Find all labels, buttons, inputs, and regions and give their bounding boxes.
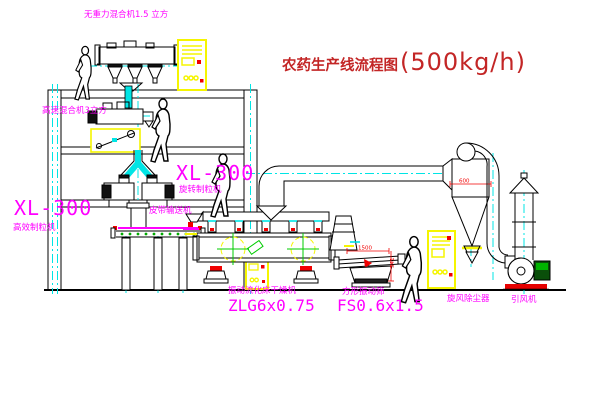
- conveyor-supports: [122, 238, 187, 290]
- belt-drive-box: [91, 129, 140, 152]
- label-dryer-name: 振动流化床干燥机: [228, 287, 296, 296]
- label-fan: 引风机: [511, 296, 537, 305]
- title-capacity: (500kg/h): [400, 48, 526, 76]
- control-cabinet-top: [178, 40, 206, 90]
- label-cyclone: 旋风除尘器: [447, 295, 490, 304]
- label-granulator-left-name: 高效制粒机: [13, 224, 56, 233]
- dimension-541: 541: [390, 258, 396, 269]
- label-gravity-mixer: 无重力混合机1.5 立方: [84, 11, 168, 20]
- label-dryer-model: ZLG6x0.75: [228, 298, 315, 314]
- label-screen-model: FS0.6x1.5: [337, 298, 424, 314]
- label-belt-conveyor: 皮带输送机: [149, 207, 192, 216]
- page-title: 农药生产线流程图 (500kg/h): [282, 48, 526, 76]
- dimension-1500: 1500: [358, 246, 372, 252]
- title-text: 农药生产线流程图: [282, 54, 398, 75]
- stack-cap: [510, 173, 538, 193]
- label-granulator-left-model: XL-300: [14, 198, 92, 218]
- granulator-discharge-duct: [127, 203, 149, 228]
- draft-fan: [503, 256, 550, 290]
- fan-motor: [534, 261, 550, 280]
- left-column: [48, 90, 61, 290]
- label-granulator-right-name: 旋转制粒机: [179, 186, 222, 195]
- flow-diagram-page: 1500 541 600: [0, 0, 600, 403]
- dimension-600: 600: [459, 179, 470, 185]
- screen-feed-hood: [330, 216, 360, 250]
- control-cabinet-dryer: [428, 231, 455, 288]
- person-ground: [401, 237, 421, 303]
- label-high-speed-mixer: 高速混合机3立方: [42, 107, 107, 116]
- label-granulator-right-model: XL-300: [176, 163, 254, 183]
